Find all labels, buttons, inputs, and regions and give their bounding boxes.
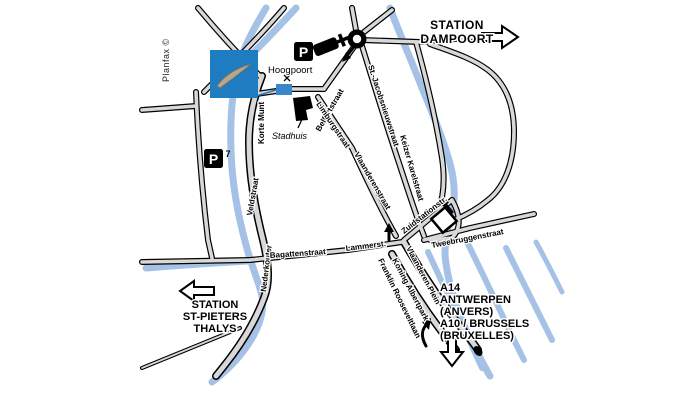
location-highlight bbox=[276, 84, 292, 95]
map-credit: Planfax © bbox=[161, 38, 171, 82]
canal-se-4 bbox=[536, 242, 562, 292]
svg-text:DAMPOORT: DAMPOORT bbox=[420, 32, 493, 46]
street-label-st-jacobsnieuwstraat: St.-Jacobsnieuwstraat bbox=[366, 64, 401, 148]
svg-text:(BRUXELLES): (BRUXELLES) bbox=[440, 330, 514, 342]
p7-number: 7 bbox=[226, 149, 231, 159]
svg-text:(ANVERS): (ANVERS) bbox=[440, 306, 494, 318]
parking-p7-icon: P 7 bbox=[204, 149, 231, 168]
p7-letter: P bbox=[209, 151, 218, 167]
destination-label-dampoort: STATION DAMPOORT bbox=[420, 18, 493, 46]
company-logo bbox=[210, 50, 258, 98]
poi-label-hoogpoort: Hoogpoort bbox=[268, 65, 313, 76]
one-way-arrow-vlaanderenplein bbox=[422, 318, 431, 346]
p1-number: 1 bbox=[316, 42, 321, 52]
svg-text:A10 / BRUSSELS: A10 / BRUSSELS bbox=[440, 318, 529, 330]
arrow-to-stpieters-icon bbox=[180, 281, 214, 301]
svg-text:STATION: STATION bbox=[192, 299, 239, 311]
svg-text:A14: A14 bbox=[440, 282, 461, 294]
svg-text:ANTWERPEN: ANTWERPEN bbox=[440, 294, 511, 306]
svg-text:STATION: STATION bbox=[430, 18, 484, 32]
parking-p1-icon: P 1 bbox=[294, 42, 321, 61]
destination-label-highway: A14 ANTWERPEN (ANVERS) A10 / BRUSSELS (B… bbox=[440, 282, 529, 342]
roundabout-icon bbox=[348, 30, 367, 49]
city-map: P 1 P 7 bbox=[0, 0, 700, 400]
svg-text:ST-PIETERS: ST-PIETERS bbox=[183, 311, 247, 323]
map-canvas: P 1 P 7 bbox=[0, 0, 700, 400]
svg-text:THALYS: THALYS bbox=[194, 323, 237, 335]
street-label-korte-munt: Korte Munt bbox=[257, 101, 266, 144]
p1-letter: P bbox=[299, 44, 308, 60]
street-label-lammerstraat: Lammerst. bbox=[345, 239, 386, 253]
poi-label-stadhuis: Stadhuis bbox=[272, 131, 308, 141]
street-label-vlaanderenstraat: Vlaanderenstraat bbox=[352, 151, 392, 212]
